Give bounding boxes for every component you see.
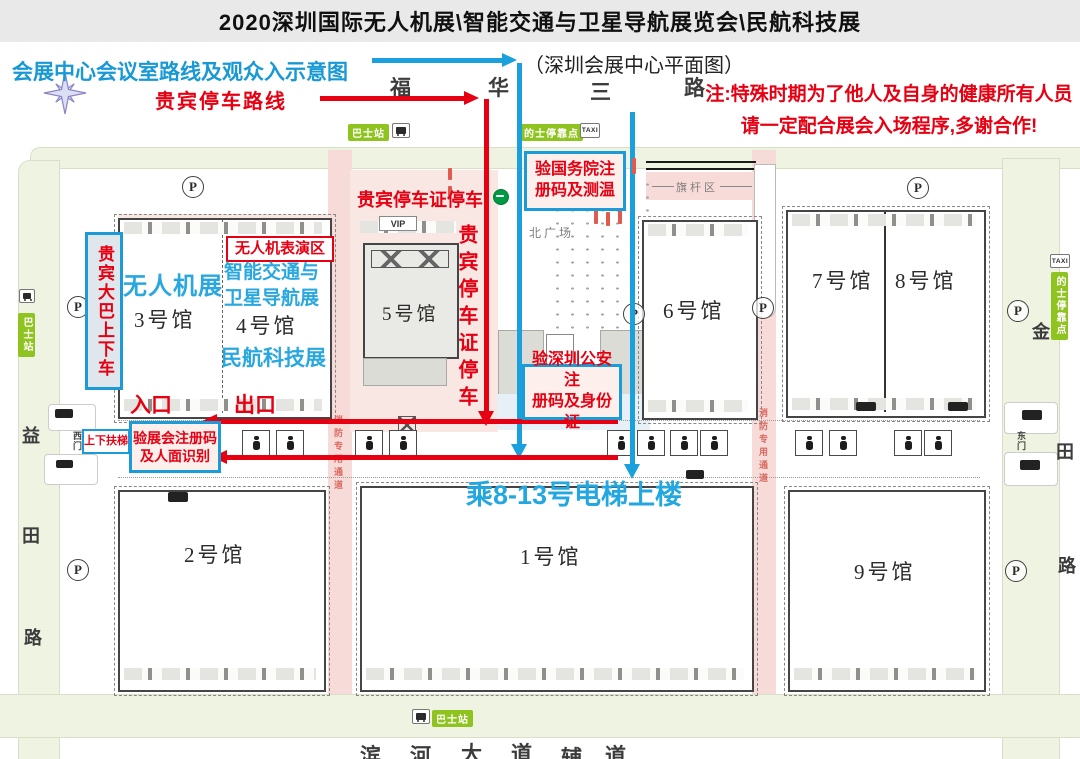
loading-dock — [794, 668, 976, 680]
red-route-vertical — [484, 99, 489, 411]
parking-icon: P — [907, 177, 929, 199]
truck-icon — [856, 402, 876, 411]
truck-icon — [168, 492, 188, 502]
street-yitian-1: 益 — [22, 422, 40, 448]
loading-dock — [648, 224, 748, 236]
bus-icon — [19, 289, 35, 303]
car-icon — [55, 409, 73, 418]
person-icon — [710, 436, 718, 451]
bus-station-label: 巴士站 — [432, 710, 473, 727]
elevator-icon — [829, 430, 857, 456]
car-icon — [1022, 410, 1042, 420]
hall-1-building — [360, 486, 754, 692]
hall6-wall — [646, 161, 756, 170]
bus-station-label: 巴士站 — [18, 313, 35, 357]
parking-icon: P — [182, 176, 204, 198]
checkpoint-expo-line2: 及人面识别 — [132, 447, 218, 465]
elevator-icon — [355, 430, 383, 456]
elevator-icon — [894, 430, 922, 456]
street-binhe-1: 滨 — [360, 740, 381, 759]
hall-5-label: 5号馆 — [382, 299, 439, 326]
red-route-legend: 贵宾停车路线 — [155, 85, 287, 114]
hall-5-annex — [363, 358, 447, 386]
person-icon — [252, 436, 260, 451]
red-dash-marker — [618, 210, 622, 224]
flag-area-label: 旗杆区 — [674, 179, 720, 195]
red-dash-marker — [606, 212, 610, 226]
checkpoint-police-line2: 册码及身份证 — [525, 392, 619, 434]
hall-3-4-divider — [222, 220, 223, 413]
hall-7-8-building — [786, 210, 986, 418]
loading-dock — [124, 668, 316, 680]
checkpoint-police-line1: 验深圳公安注 — [525, 350, 619, 392]
red-dash-marker — [448, 168, 452, 180]
person-icon — [904, 436, 912, 451]
loading-dock — [124, 222, 322, 234]
metro-icon — [493, 189, 509, 205]
elevator-icon — [795, 430, 823, 456]
blue-route-legend: 会展中心会议室路线及观众入示意图 — [12, 56, 348, 86]
truck-icon — [686, 470, 704, 479]
checkpoint-expo-box: 验展会注册码 及人面识别 — [129, 421, 221, 473]
page-title: 2020深圳国际无人机展\智能交通与卫星导航展览会\民航科技展 — [0, 0, 1080, 42]
street-binhe-5: 辅 — [561, 742, 582, 759]
convention-center-map: 2020深圳国际无人机展\智能交通与卫星导航展览会\民航科技展 旗杆区 西门 东… — [0, 0, 1080, 759]
parking-icon: P — [1007, 300, 1029, 322]
elevator-icon — [670, 430, 698, 456]
hall-4-label: 4号馆 — [236, 310, 298, 340]
hall-7-8-divider — [884, 212, 886, 412]
blue-route-arrowhead — [502, 53, 517, 67]
taxi-stop-label: 的士停靠点 — [520, 124, 583, 141]
red-dash-marker — [632, 158, 636, 174]
checkpoint-state-line1: 验国务院注 — [527, 160, 623, 181]
elevator-tip-label: 乘8-13号电梯上楼 — [466, 473, 682, 512]
red-dash-marker — [594, 210, 598, 224]
street-jintian-2: 田 — [1056, 438, 1074, 464]
person-icon — [680, 436, 688, 451]
hall-2-label: 2号馆 — [184, 539, 246, 569]
street-binhe-3: 大 — [461, 738, 482, 759]
street-binhe-6: 道 — [605, 740, 626, 759]
red-concourse-line-2 — [226, 455, 618, 460]
elevator-icon — [276, 430, 304, 456]
health-notice-line1: 注:特殊时期为了他人及自身的健康所有人员 — [698, 79, 1080, 106]
elevator-icon — [924, 430, 952, 456]
truck-icon — [948, 402, 968, 411]
street-yitian-3: 路 — [24, 624, 42, 650]
checkpoint-police-box: 验深圳公安注 册码及身份证 — [522, 364, 622, 420]
vip-parking-label-h: 贵宾停车证停车 — [357, 186, 483, 212]
bus-glyph-icon — [396, 127, 406, 134]
person-icon — [617, 436, 625, 451]
person-icon — [286, 436, 294, 451]
parking-icon: P — [67, 559, 89, 581]
checkpoint-state-line2: 册码及测温 — [527, 181, 623, 202]
health-notice-line2: 请一定配合展会入场程序,多谢合作! — [698, 111, 1080, 138]
red-route-horizontal — [320, 96, 466, 101]
west-driveway-2 — [44, 454, 98, 485]
hall-6-label: 6号馆 — [663, 295, 725, 325]
taxi-icon: TAXI — [580, 123, 600, 138]
hall-1-label: 1号馆 — [520, 541, 582, 571]
fire-lane-label: 消防专用通道 — [757, 408, 770, 508]
fire-lane-label: 消防专用通道 — [332, 415, 345, 515]
hall-9-building — [788, 490, 986, 692]
elevator-icon — [389, 430, 417, 456]
east-gate-label: 东门 — [1015, 431, 1028, 451]
vip-parking-label-v: 贵宾停车证停车 — [452, 224, 481, 429]
person-icon — [839, 436, 847, 451]
elevator-icon — [242, 430, 270, 456]
street-jintian-3: 路 — [1058, 552, 1076, 578]
elevator-icon — [637, 430, 665, 456]
loading-dock — [792, 214, 976, 226]
hall-7-label: 7号馆 — [812, 265, 874, 295]
person-icon — [647, 436, 655, 451]
its-expo-line1: 智能交通与 — [224, 257, 319, 284]
checkpoint-state-council-box: 验国务院注 册码及测温 — [524, 151, 626, 211]
blue-route-horizontal — [372, 58, 504, 63]
drone-expo-label: 无人机展 — [123, 266, 223, 301]
person-icon — [805, 436, 813, 451]
civil-aviation-label: 民航科技展 — [221, 342, 326, 372]
parking-icon: P — [752, 297, 774, 319]
bus-station-label: 巴士站 — [348, 124, 389, 141]
car-icon — [1020, 460, 1040, 470]
bus-icon — [412, 709, 430, 724]
street-binhe-2: 河 — [410, 740, 431, 759]
person-icon — [365, 436, 373, 451]
street-binhe-4: 道 — [511, 738, 532, 759]
vip-bus-stop-box: 贵宾大巴上下车 — [85, 232, 123, 390]
vip-bus-stop-label: 贵宾大巴上下车 — [93, 245, 115, 378]
north-plaza-label: 北广场 — [529, 224, 574, 241]
elevator-icon — [700, 430, 728, 456]
hall-9-label: 9号馆 — [854, 556, 916, 586]
map-subtitle: （深圳会展中心平面图） — [524, 49, 744, 78]
hall-8-label: 8号馆 — [895, 265, 957, 295]
road-bottom — [0, 694, 1080, 738]
vip-entrance-label: VIP — [379, 216, 417, 231]
hall-3-label: 3号馆 — [134, 304, 196, 334]
street-fuhua-3: 三 — [590, 76, 611, 106]
bus-glyph-icon — [23, 293, 31, 299]
hall-2-building — [118, 490, 326, 692]
red-route-arrowhead — [464, 91, 479, 105]
entrance-label: 入口 — [130, 389, 172, 419]
loading-dock — [366, 668, 744, 680]
car-icon — [56, 460, 73, 468]
street-fuhua-2: 华 — [488, 72, 509, 102]
bus-icon — [392, 123, 410, 138]
checkpoint-expo-line1: 验展会注册码 — [132, 429, 218, 447]
exit-label: 出口 — [234, 389, 276, 419]
taxi-stop-label: 的士停靠点 — [1051, 272, 1068, 340]
escalator-box: 上下扶梯 — [82, 429, 130, 454]
taxi-icon: TAXI — [1050, 254, 1070, 268]
person-icon — [934, 436, 942, 451]
street-yitian-2: 田 — [22, 522, 40, 548]
health-notice: 注:特殊时期为了他人及自身的健康所有人员 请一定配合展会入场程序,多谢合作! — [698, 79, 1080, 138]
its-expo-line2: 卫星导航展 — [224, 283, 319, 310]
loading-dock — [648, 400, 748, 412]
bus-glyph-icon — [416, 713, 426, 720]
parking-icon: P — [1005, 560, 1027, 582]
hall-5-stage — [371, 250, 449, 268]
street-jintian-1: 金 — [1032, 318, 1050, 344]
person-icon — [399, 436, 407, 451]
